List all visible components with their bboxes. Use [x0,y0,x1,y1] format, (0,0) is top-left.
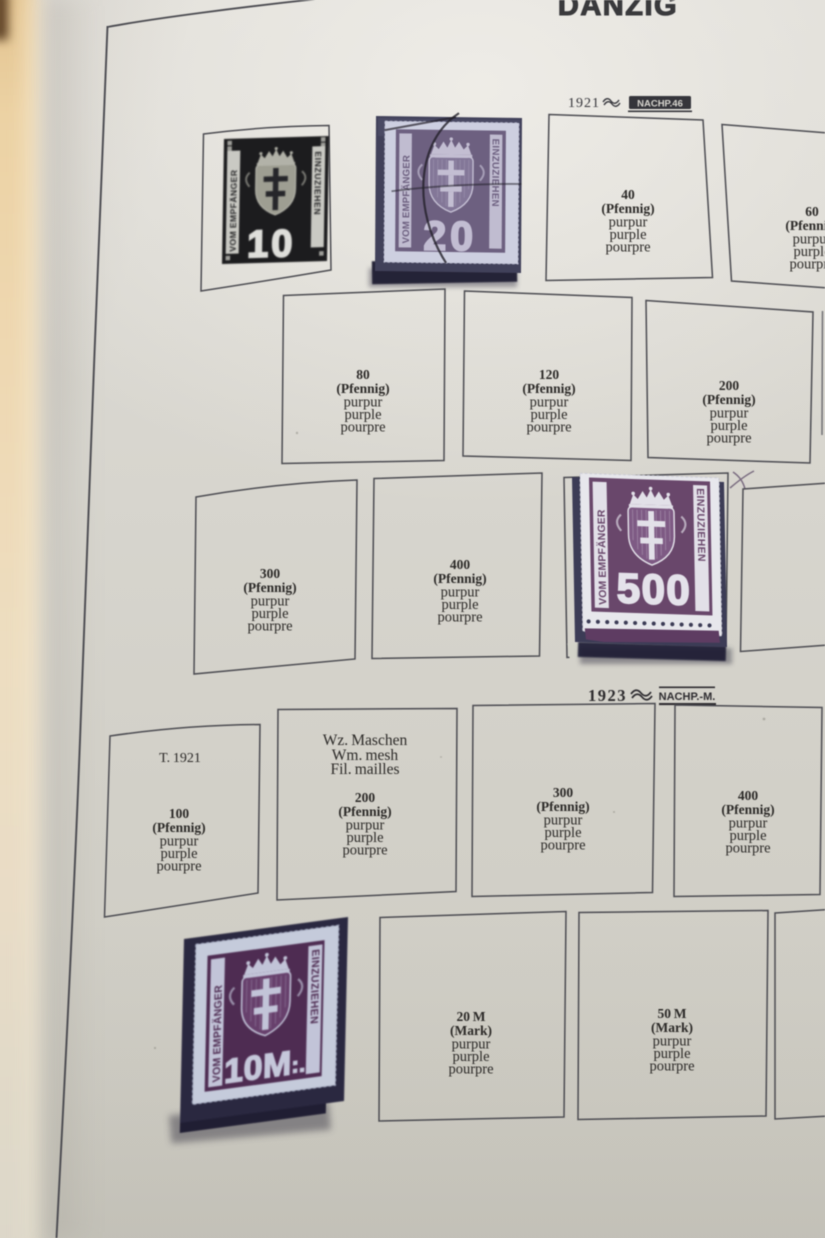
svg-text:40: 40 [621,187,635,202]
svg-text:60: 60 [805,204,819,219]
svg-text:100: 100 [169,806,190,821]
svg-text:EINZUZIEHEN: EINZUZIEHEN [308,949,322,1026]
svg-text:NACHP.46: NACHP.46 [637,99,683,110]
svg-text:pourpre: pourpre [605,240,650,256]
svg-text:50 M: 50 M [658,1006,687,1021]
svg-text:EINZUZIEHEN: EINZUZIEHEN [312,151,323,215]
svg-text:200: 200 [355,790,376,805]
svg-text:NACHP.-M.: NACHP.-M. [659,691,716,703]
svg-text:300: 300 [260,566,281,581]
svg-text:20 M: 20 M [457,1009,486,1024]
svg-text:VOM EMPFÄNGER: VOM EMPFÄNGER [210,984,225,1083]
svg-text:pourpre: pourpre [789,257,825,273]
svg-text:pourpre: pourpre [448,1062,493,1078]
svg-text:pourpre: pourpre [540,838,585,854]
svg-text:Fil. mailles: Fil. mailles [331,761,400,778]
svg-text:VOM EMPFÄNGER: VOM EMPFÄNGER [401,155,413,244]
svg-text:120: 120 [539,367,560,382]
svg-text:400: 400 [450,557,471,572]
svg-text:pourpre: pourpre [725,841,770,857]
svg-text:pourpre: pourpre [649,1059,694,1075]
svg-text:80: 80 [356,367,370,382]
svg-text:EINZUZIEHEN: EINZUZIEHEN [489,139,500,208]
svg-text:pourpre: pourpre [340,420,385,436]
svg-text:VOM EMPFÄNGER: VOM EMPFÄNGER [228,169,239,252]
svg-text:EINZUZIEHEN: EINZUZIEHEN [694,488,706,562]
svg-text:200: 200 [719,378,740,393]
svg-text:1921: 1921 [568,96,600,111]
svg-text:DANZIG: DANZIG [558,0,678,22]
svg-text:10: 10 [247,223,296,266]
svg-text:1923: 1923 [588,686,627,705]
svg-text:T. 1921: T. 1921 [159,751,201,766]
svg-text:pourpre: pourpre [706,431,751,447]
svg-text:300: 300 [553,785,574,800]
svg-text:400: 400 [738,788,759,803]
svg-text:pourpre: pourpre [156,859,201,875]
svg-text:pourpre: pourpre [526,420,571,436]
svg-text:pourpre: pourpre [437,610,482,626]
svg-text:pourpre: pourpre [342,843,387,859]
svg-text:pourpre: pourpre [247,619,292,635]
svg-text:500: 500 [616,564,691,613]
